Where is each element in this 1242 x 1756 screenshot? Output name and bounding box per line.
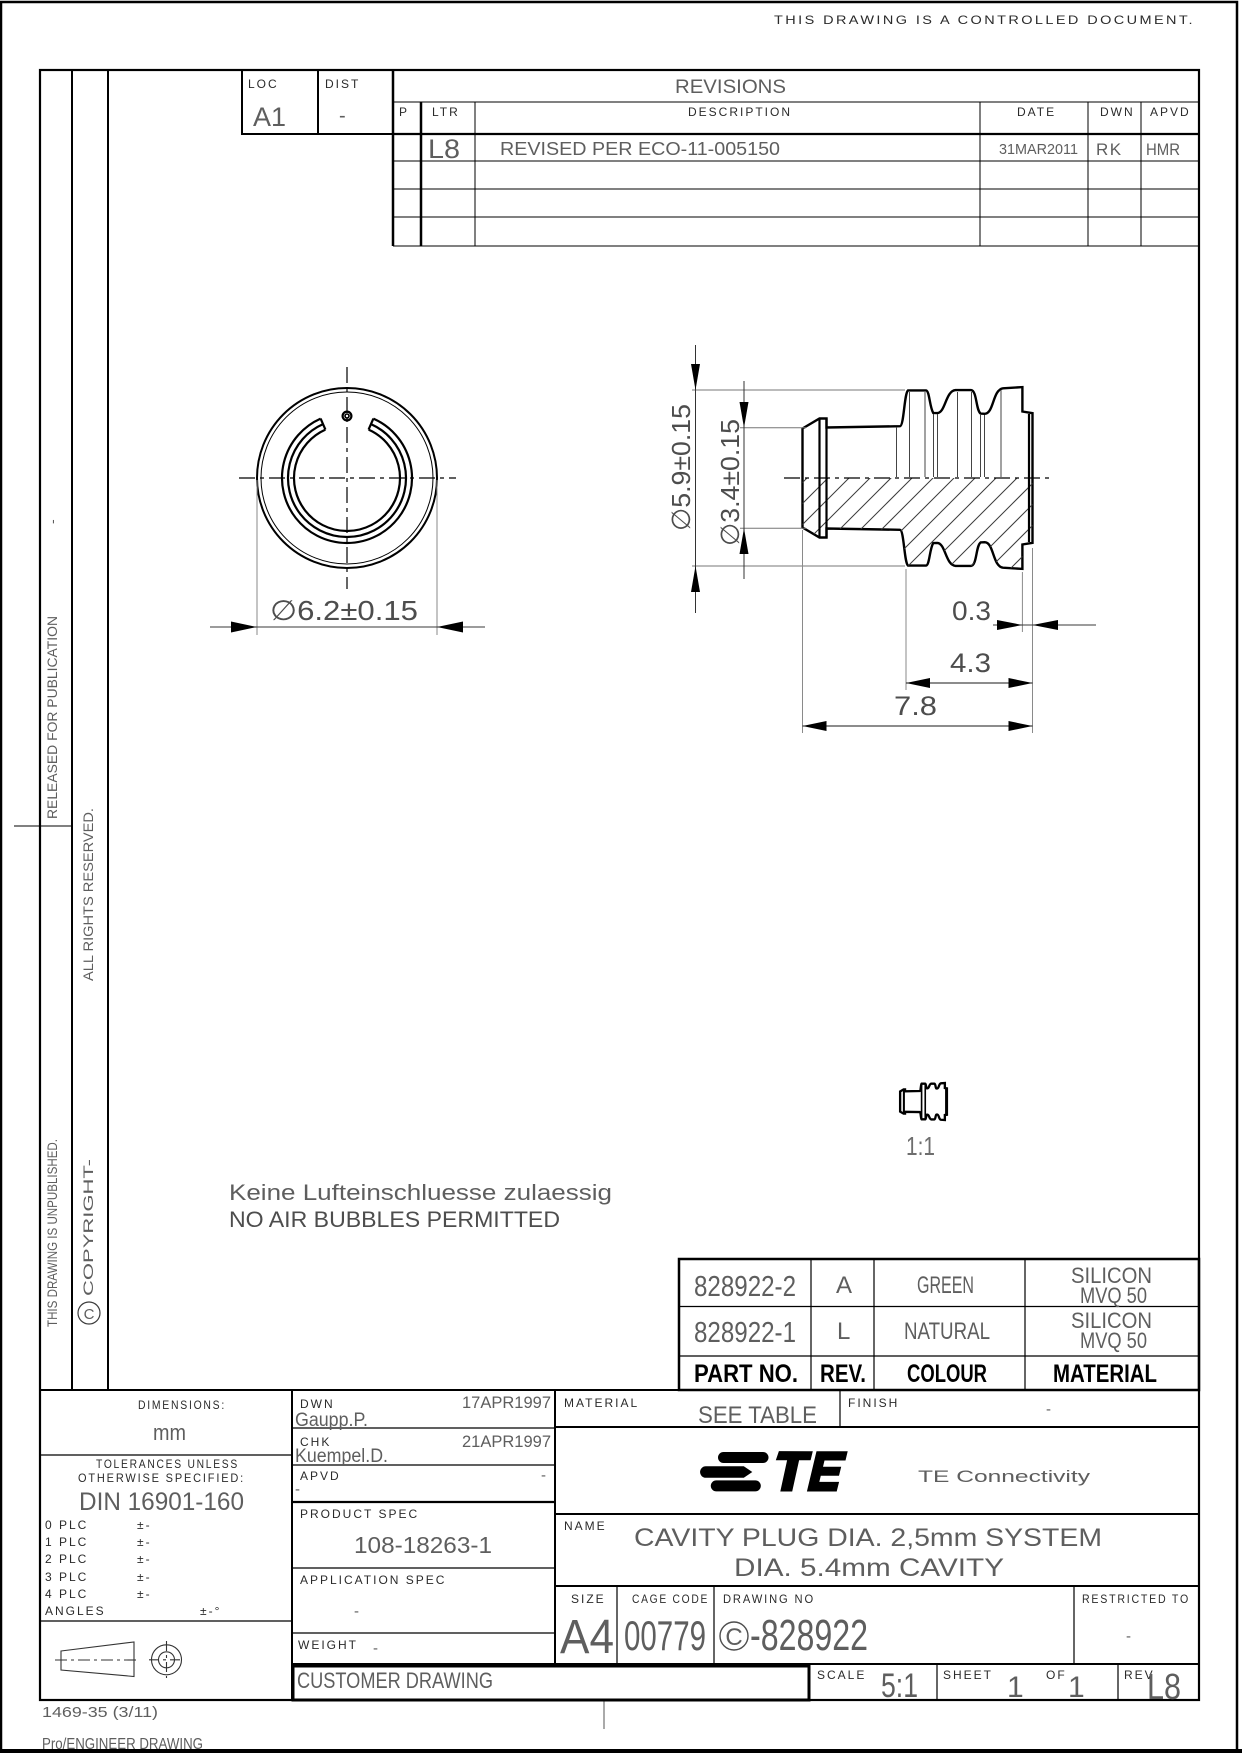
svg-text:A4: A4: [560, 1611, 614, 1664]
svg-text:DWN: DWN: [300, 1397, 335, 1411]
svg-text:APVD: APVD: [1150, 105, 1191, 119]
svg-text:4.3: 4.3: [950, 648, 991, 678]
svg-text:MVQ 50: MVQ 50: [1080, 1328, 1147, 1353]
svg-text:1469-35 (3/11): 1469-35 (3/11): [42, 1704, 158, 1721]
svg-text:DIN 16901-160: DIN 16901-160: [79, 1488, 244, 1516]
svg-text:17APR1997: 17APR1997: [462, 1393, 551, 1412]
svg-text:REV.: REV.: [820, 1360, 866, 1388]
svg-text:∅6.2±0.15: ∅6.2±0.15: [270, 595, 418, 626]
svg-text:DESCRIPTION: DESCRIPTION: [688, 105, 792, 119]
svg-text:CAGE CODE: CAGE CODE: [632, 1592, 709, 1606]
svg-text:±-°: ±-°: [200, 1604, 221, 1618]
svg-text:0 PLC: 0 PLC: [45, 1518, 88, 1532]
svg-text:NAME: NAME: [564, 1519, 607, 1533]
svg-text:Kuempel.D.: Kuempel.D.: [295, 1446, 388, 1467]
svg-text:mm: mm: [153, 1420, 186, 1445]
svg-text:00779: 00779: [624, 1612, 706, 1659]
svg-text:CUSTOMER DRAWING: CUSTOMER DRAWING: [297, 1668, 493, 1693]
svg-text:1: 1: [1007, 1671, 1024, 1704]
svg-text:TE Connectivity: TE Connectivity: [918, 1467, 1091, 1486]
svg-text:SCALE: SCALE: [817, 1668, 866, 1682]
svg-text:APPLICATION SPEC: APPLICATION SPEC: [300, 1573, 446, 1587]
svg-text:OTHERWISE SPECIFIED:: OTHERWISE SPECIFIED:: [78, 1471, 245, 1485]
svg-text:DIST: DIST: [325, 77, 360, 91]
svg-text:SIZE: SIZE: [571, 1592, 606, 1606]
svg-text:PART NO.: PART NO.: [694, 1360, 798, 1388]
svg-text:COPYRIGHT-: COPYRIGHT-: [80, 1158, 96, 1296]
svg-text:ANGLES: ANGLES: [45, 1604, 106, 1618]
svg-text:-: -: [541, 1467, 546, 1484]
svg-text:∅5.9±0.15: ∅5.9±0.15: [666, 404, 696, 531]
svg-text:THIS DRAWING IS UNPUBLISHED.: THIS DRAWING IS UNPUBLISHED.: [44, 1139, 60, 1327]
svg-text:5:1: 5:1: [881, 1667, 918, 1705]
svg-text:-: -: [44, 519, 60, 524]
svg-text:828922-1: 828922-1: [694, 1317, 796, 1349]
svg-text:LOC: LOC: [248, 77, 279, 91]
svg-text:21APR1997: 21APR1997: [462, 1432, 551, 1451]
svg-text:PRODUCT SPEC: PRODUCT SPEC: [300, 1507, 419, 1521]
svg-text:-: -: [354, 1603, 359, 1620]
svg-text:REVISED PER ECO-11-005150: REVISED PER ECO-11-005150: [500, 139, 780, 159]
svg-text:DWN: DWN: [1100, 105, 1135, 119]
svg-text:RK: RK: [1096, 140, 1123, 159]
svg-text:A1: A1: [253, 102, 286, 132]
svg-text:-: -: [1126, 1628, 1131, 1645]
svg-text:4 PLC: 4 PLC: [45, 1587, 88, 1601]
svg-text:RESTRICTED TO: RESTRICTED TO: [1082, 1592, 1190, 1606]
svg-text:828922-2: 828922-2: [694, 1271, 796, 1303]
svg-text:-: -: [295, 1481, 300, 1498]
svg-text:7.8: 7.8: [894, 691, 937, 721]
svg-text:Pro/ENGINEER DRAWING: Pro/ENGINEER DRAWING: [42, 1736, 203, 1753]
svg-text:-: -: [1046, 1401, 1051, 1418]
svg-text:-: -: [373, 1640, 378, 1657]
svg-text:±-: ±-: [137, 1570, 152, 1584]
svg-text:±-: ±-: [137, 1552, 152, 1566]
svg-text:Gaupp.P.: Gaupp.P.: [295, 1410, 368, 1431]
svg-text:FINISH: FINISH: [848, 1396, 899, 1410]
svg-text:Keine Lufteinschluesse zulaess: Keine Lufteinschluesse zulaessig: [229, 1180, 612, 1205]
svg-text:±-: ±-: [137, 1535, 152, 1549]
svg-text:DRAWING NO: DRAWING NO: [723, 1592, 815, 1606]
svg-text:3 PLC: 3 PLC: [45, 1570, 88, 1584]
svg-text:L8: L8: [428, 134, 460, 164]
svg-text:NO AIR BUBBLES PERMITTED: NO AIR BUBBLES PERMITTED: [229, 1207, 560, 1232]
svg-text:L: L: [837, 1318, 850, 1345]
svg-text:THIS DRAWING IS A CONTROLLED D: THIS DRAWING IS A CONTROLLED DOCUMENT.: [774, 13, 1195, 27]
svg-text:C: C: [725, 1624, 742, 1651]
svg-text:1: 1: [1068, 1671, 1085, 1704]
svg-text:-828922: -828922: [750, 1611, 868, 1660]
svg-text:1 PLC: 1 PLC: [45, 1535, 88, 1549]
svg-text:SHEET: SHEET: [943, 1668, 993, 1682]
svg-text:1:1: 1:1: [906, 1131, 935, 1161]
svg-text:CAVITY PLUG DIA. 2,5mm SYSTEM: CAVITY PLUG DIA. 2,5mm SYSTEM: [634, 1524, 1102, 1552]
svg-text:0.3: 0.3: [952, 596, 991, 626]
svg-text:REVISIONS: REVISIONS: [675, 77, 786, 98]
svg-text:±-: ±-: [137, 1587, 152, 1601]
svg-text:SEE TABLE: SEE TABLE: [698, 1402, 817, 1429]
svg-text:A: A: [836, 1272, 852, 1299]
svg-text:NATURAL: NATURAL: [904, 1318, 990, 1345]
svg-text:MATERIAL: MATERIAL: [564, 1396, 639, 1410]
svg-text:RELEASED FOR PUBLICATION: RELEASED FOR PUBLICATION: [44, 616, 60, 819]
svg-text:31MAR2011: 31MAR2011: [999, 141, 1078, 158]
svg-text:DATE: DATE: [1017, 105, 1056, 119]
svg-text:DIA. 5.4mm CAVITY: DIA. 5.4mm CAVITY: [734, 1554, 1004, 1582]
svg-text:ALL RIGHTS RESERVED.: ALL RIGHTS RESERVED.: [80, 808, 96, 981]
svg-text:DIMENSIONS:: DIMENSIONS:: [138, 1398, 226, 1412]
svg-text:±-: ±-: [137, 1518, 152, 1532]
svg-text:MVQ 50: MVQ 50: [1080, 1283, 1147, 1308]
svg-text:∅3.4±0.15: ∅3.4±0.15: [715, 419, 745, 546]
svg-text:-: -: [339, 105, 346, 127]
svg-text:APVD: APVD: [300, 1469, 341, 1483]
svg-text:2 PLC: 2 PLC: [45, 1552, 88, 1566]
svg-text:C: C: [84, 1306, 95, 1323]
svg-text:LTR: LTR: [432, 105, 460, 119]
svg-text:COLOUR: COLOUR: [907, 1360, 987, 1388]
svg-text:HMR: HMR: [1146, 140, 1180, 159]
svg-text:GREEN: GREEN: [917, 1272, 974, 1299]
svg-text:OF: OF: [1046, 1668, 1067, 1682]
svg-text:P: P: [399, 105, 409, 119]
svg-text:MATERIAL: MATERIAL: [1053, 1360, 1157, 1388]
svg-text:L8: L8: [1147, 1666, 1181, 1707]
svg-text:TOLERANCES UNLESS: TOLERANCES UNLESS: [96, 1457, 239, 1471]
svg-text:108-18263-1: 108-18263-1: [354, 1532, 492, 1558]
svg-text:WEIGHT: WEIGHT: [298, 1638, 358, 1652]
